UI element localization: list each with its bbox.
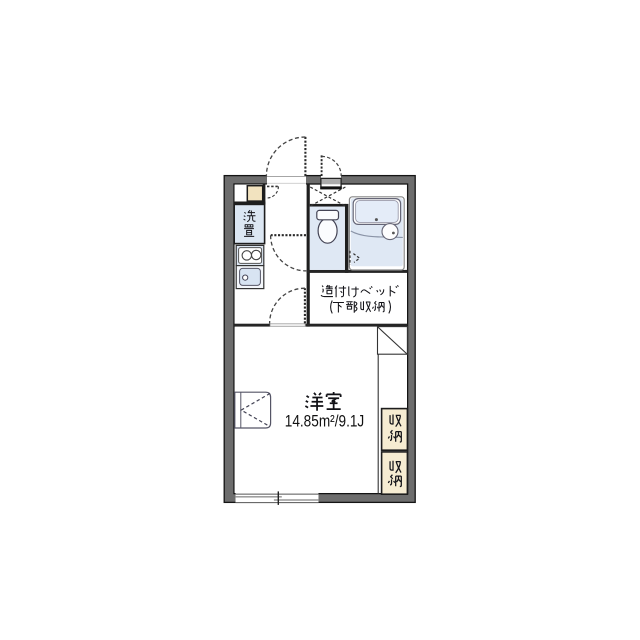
svg-text:14.85m²/9.1J: 14.85m²/9.1J [285, 413, 365, 431]
